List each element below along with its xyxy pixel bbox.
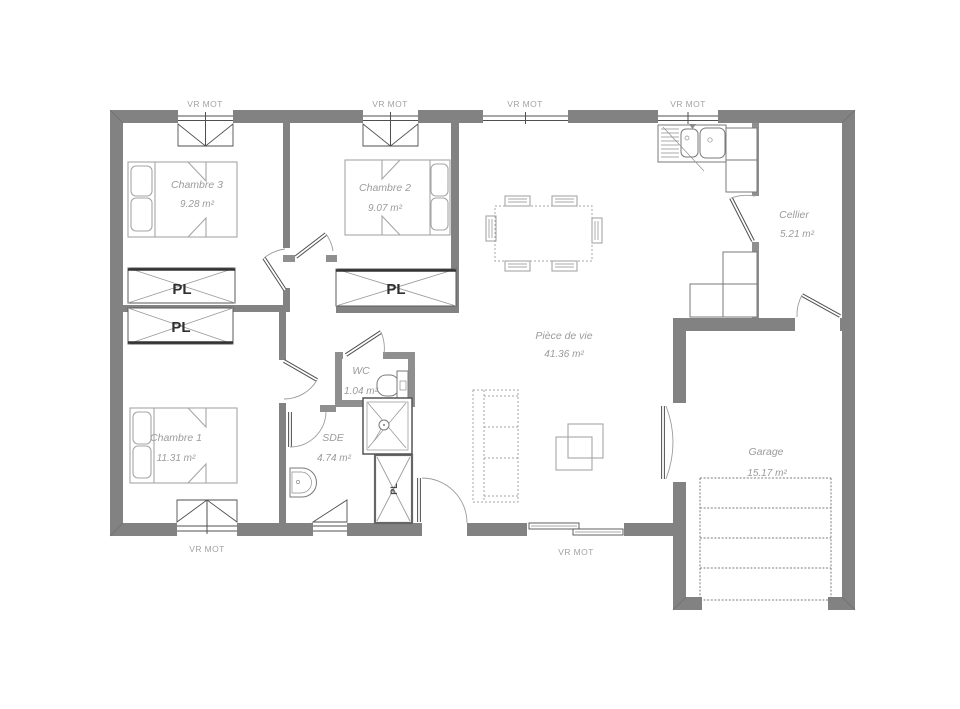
- shower: [363, 398, 412, 454]
- sofa: [473, 390, 518, 502]
- door-kitchen-cellier: [731, 195, 755, 241]
- closet-pl-chambre-2: PL: [336, 269, 456, 306]
- door-entrance: [419, 478, 467, 523]
- room-area: 11.31 m²: [157, 453, 196, 464]
- room-name: Cellier: [779, 209, 809, 221]
- door-chambre-3: [264, 249, 285, 290]
- closet-label: PL: [389, 483, 399, 495]
- room-area: 41.36 m²: [544, 349, 584, 360]
- room-area: 15.17 m²: [747, 468, 787, 479]
- door-wc: [346, 332, 384, 355]
- room-area: 4.74 m²: [317, 453, 352, 464]
- door-living-garage: [663, 406, 673, 479]
- room-name: Pièce de vie: [535, 330, 592, 342]
- bed-chambre-1: [130, 408, 237, 483]
- door-chambre-2: [296, 234, 333, 257]
- room-name: WC: [352, 365, 370, 377]
- door-sde: [290, 412, 326, 447]
- garage-door: [700, 478, 831, 600]
- kitchen-sink-counter: [658, 124, 726, 171]
- washbasin: [290, 468, 317, 497]
- door-cellier-garage: [797, 295, 840, 317]
- floor-plan: PL PL PL PL: [0, 0, 960, 709]
- floor-plan-drawing: PL PL PL PL: [0, 0, 960, 709]
- room-area: 9.28 m²: [180, 199, 215, 210]
- room-area: 5.21 m²: [780, 229, 815, 240]
- dining-table: [486, 196, 602, 271]
- closet-pl-sde: PL: [375, 455, 412, 523]
- room-label-piece-de-vie: Pièce de vie 41.36 m²: [535, 330, 592, 360]
- closet-label: PL: [171, 319, 190, 336]
- vr-mot-label: VR MOT: [372, 99, 407, 109]
- window-sde: [313, 500, 347, 531]
- room-name: Chambre 1: [150, 432, 202, 444]
- room-name: Chambre 2: [359, 182, 411, 194]
- room-label-wc: WC 1.04 m²: [344, 365, 379, 397]
- toilet: [377, 371, 408, 399]
- room-name: SDE: [322, 432, 345, 444]
- room-label-sde: SDE 4.74 m²: [317, 432, 352, 464]
- room-name: Garage: [748, 446, 783, 458]
- room-area: 1.04 m²: [344, 386, 379, 397]
- closet-label: PL: [386, 281, 405, 298]
- closet-label: PL: [172, 281, 191, 298]
- vr-mot-label: VR MOT: [558, 547, 593, 557]
- room-area: 9.07 m²: [368, 203, 403, 214]
- bed-chambre-2: [345, 160, 450, 235]
- room-name: Chambre 3: [171, 179, 223, 191]
- closet-pl-chambre-3: PL: [128, 268, 235, 303]
- vr-mot-label: VR MOT: [507, 99, 542, 109]
- room-label-garage: Garage 15.17 m²: [747, 446, 787, 479]
- closet-pl-chambre-1: PL: [128, 308, 233, 344]
- door-chambre-1: [284, 361, 317, 399]
- vr-mot-label: VR MOT: [187, 99, 222, 109]
- vr-mot-label: VR MOT: [189, 544, 224, 554]
- coffee-tables: [556, 424, 603, 470]
- vr-mot-label: VR MOT: [670, 99, 705, 109]
- room-label-cellier: Cellier 5.21 m²: [779, 209, 815, 240]
